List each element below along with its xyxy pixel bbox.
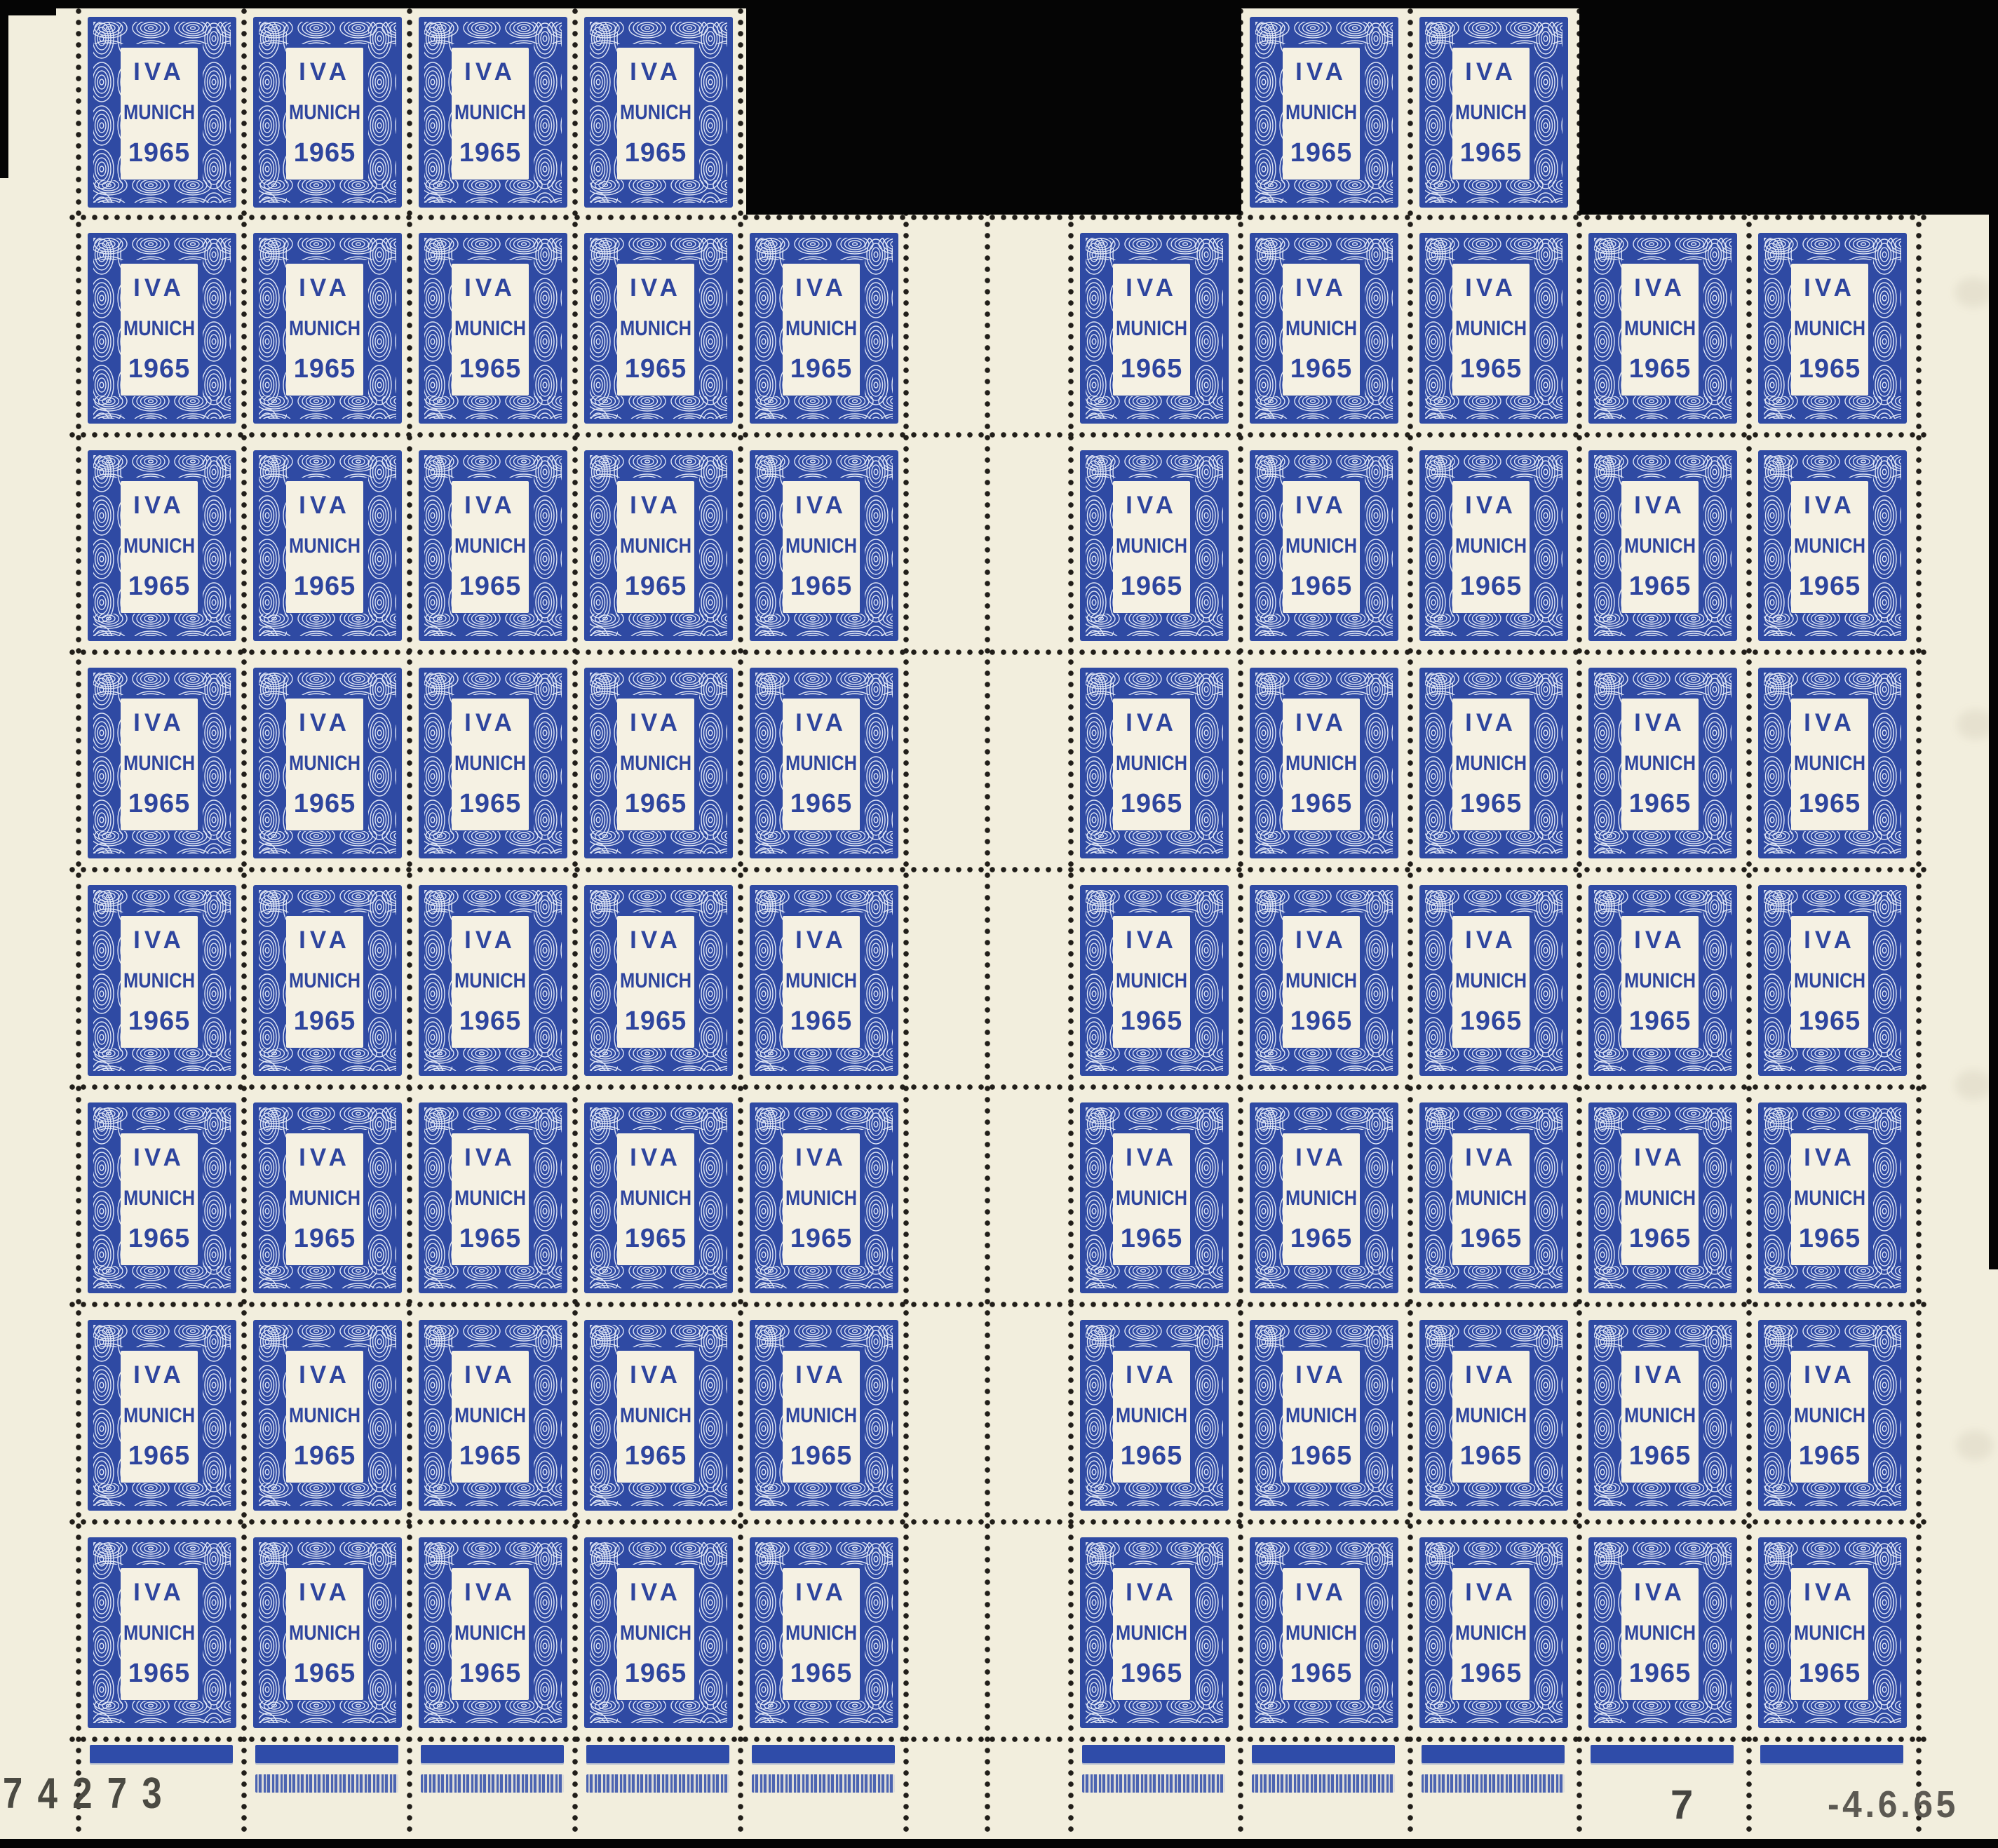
stamp-impression	[1250, 1102, 1398, 1293]
stamp	[750, 1537, 898, 1728]
stamp	[88, 668, 236, 858]
stamp	[88, 450, 236, 641]
stamp-impression	[1588, 1320, 1737, 1511]
stamp-impression	[88, 17, 236, 208]
stamp	[253, 17, 402, 208]
stamp	[1250, 233, 1398, 424]
stamp	[1758, 885, 1907, 1076]
color-bar-solid	[1422, 1745, 1565, 1763]
stamp-impression	[253, 885, 402, 1076]
stamp-impression	[419, 450, 567, 641]
stamp	[1250, 1537, 1398, 1728]
stamp-impression	[1080, 668, 1229, 858]
stamp-impression	[1758, 1102, 1907, 1293]
stamp-impression	[1250, 1537, 1398, 1728]
stamp	[253, 233, 402, 424]
stamp-impression	[1250, 450, 1398, 641]
stamp-impression	[1080, 885, 1229, 1076]
print-date: -4.6.65	[1828, 1783, 1959, 1826]
stamp	[88, 17, 236, 208]
stamp	[750, 1102, 898, 1293]
stamp-impression	[1419, 233, 1568, 424]
stamp-impression	[419, 1537, 567, 1728]
color-bar-solid	[1082, 1745, 1225, 1763]
stamp	[750, 885, 898, 1076]
stamp	[1758, 233, 1907, 424]
stamp-impression	[419, 1102, 567, 1293]
torn-away-area	[1989, 215, 1998, 1269]
margin-smudge	[1957, 1431, 1993, 1460]
stamp	[584, 1537, 733, 1728]
stamp-impression	[1419, 1320, 1568, 1511]
stamp-impression	[88, 450, 236, 641]
stamp	[1588, 1102, 1737, 1293]
perf-column	[1237, 6, 1244, 1832]
stamp-impression	[1080, 1537, 1229, 1728]
stamp-impression	[1250, 885, 1398, 1076]
stamp	[1250, 668, 1398, 858]
stamp	[419, 450, 567, 641]
stamp-impression	[1588, 1102, 1737, 1293]
stamp	[1588, 668, 1737, 858]
stamp-impression	[253, 17, 402, 208]
stamp-impression	[1419, 1102, 1568, 1293]
color-bar-solid	[586, 1745, 729, 1763]
color-bar-solid	[752, 1745, 895, 1763]
stamp	[1080, 450, 1229, 641]
perf-column	[75, 6, 82, 1832]
stamp-impression	[750, 1102, 898, 1293]
stamp-impression	[1588, 450, 1737, 641]
stamp-impression	[584, 1102, 733, 1293]
stamp-impression	[1588, 885, 1737, 1076]
stamp-impression	[88, 1102, 236, 1293]
color-bar-stippled	[421, 1774, 564, 1793]
stamp-impression	[1588, 233, 1737, 424]
margin-smudge	[1955, 1070, 1992, 1100]
perf-column	[572, 6, 579, 1832]
stamp	[1588, 1537, 1737, 1728]
plate-number: 7	[1670, 1781, 1693, 1828]
stamp	[253, 668, 402, 858]
stamp	[1588, 1320, 1737, 1511]
color-bar-stippled	[255, 1774, 398, 1793]
perf-row	[67, 1736, 1931, 1743]
stamp-impression	[1250, 17, 1398, 208]
stamp-impression	[88, 1537, 236, 1728]
stamp-impression	[584, 668, 733, 858]
torn-away-area	[1579, 0, 1998, 215]
margin-smudge	[1955, 278, 1992, 307]
color-bar-stippled	[752, 1774, 895, 1793]
torn-away-area	[746, 0, 1241, 215]
stamp-impression	[1758, 885, 1907, 1076]
stamp-impression	[1080, 1102, 1229, 1293]
stamp	[1419, 885, 1568, 1076]
stamp-impression	[419, 1320, 567, 1511]
stamp	[1080, 668, 1229, 858]
stamp	[1080, 1102, 1229, 1293]
stamp	[419, 1102, 567, 1293]
perf-column	[1576, 6, 1583, 1832]
perf-column	[1915, 6, 1922, 1832]
stamp-impression	[419, 17, 567, 208]
stamp-impression	[253, 668, 402, 858]
stamp	[419, 668, 567, 858]
stamp-impression	[1758, 1320, 1907, 1511]
color-bar-solid	[1252, 1745, 1395, 1763]
stamp	[1250, 450, 1398, 641]
stamp-impression	[584, 17, 733, 208]
stamp-impression	[253, 1320, 402, 1511]
torn-away-area	[0, 1839, 1998, 1848]
stamp-impression	[1080, 450, 1229, 641]
stamp-impression	[584, 233, 733, 424]
stamp-impression	[750, 1537, 898, 1728]
perf-row	[67, 1301, 1931, 1308]
stamp	[750, 668, 898, 858]
stamp-impression	[584, 1320, 733, 1511]
stamp-impression	[253, 233, 402, 424]
stamp	[253, 1537, 402, 1728]
color-bar-solid	[421, 1745, 564, 1763]
color-bar-stippled	[1252, 1774, 1395, 1793]
stamp-impression	[1419, 885, 1568, 1076]
perf-row	[67, 431, 1931, 438]
stamp	[1419, 1537, 1568, 1728]
color-bar-solid	[1591, 1745, 1734, 1763]
stamp	[419, 1320, 567, 1511]
perf-column	[1746, 6, 1753, 1832]
stamp	[1080, 233, 1229, 424]
stamp	[1419, 450, 1568, 641]
stamp	[750, 450, 898, 641]
stamp-impression	[253, 1537, 402, 1728]
stamp-impression	[1419, 450, 1568, 641]
stamp	[584, 1102, 733, 1293]
stamp	[750, 233, 898, 424]
stamp-impression	[1419, 1537, 1568, 1728]
stamp	[584, 17, 733, 208]
stamp	[1419, 17, 1568, 208]
stamp	[1588, 233, 1737, 424]
torn-away-area	[0, 0, 56, 15]
stamp	[584, 668, 733, 858]
stamp	[1419, 1320, 1568, 1511]
stamp	[1080, 1320, 1229, 1511]
stamp-impression	[750, 233, 898, 424]
stamp	[1588, 450, 1737, 641]
stamp	[1250, 1320, 1398, 1511]
stamp-impression	[1588, 1537, 1737, 1728]
stamp	[584, 233, 733, 424]
stamp-impression	[253, 450, 402, 641]
stamp	[584, 450, 733, 641]
stamp-impression	[1250, 1320, 1398, 1511]
stamp	[1758, 1320, 1907, 1511]
stamp	[750, 1320, 898, 1511]
stamp	[88, 885, 236, 1076]
perf-column	[1067, 6, 1074, 1832]
stamp	[1588, 885, 1737, 1076]
stamp	[1250, 17, 1398, 208]
stamp-impression	[1080, 1320, 1229, 1511]
perf-column	[241, 6, 248, 1832]
stamp-impression	[253, 1102, 402, 1293]
stamp	[1080, 885, 1229, 1076]
stamp-impression	[750, 668, 898, 858]
stamp-impression	[1080, 233, 1229, 424]
color-bar-stippled	[1422, 1774, 1565, 1793]
stamp-impression	[1419, 668, 1568, 858]
stamp-impression	[1758, 668, 1907, 858]
stamp	[1758, 450, 1907, 641]
stamp-impression	[1758, 1537, 1907, 1728]
stamp-impression	[584, 450, 733, 641]
stamp	[1758, 1537, 1907, 1728]
stamp-impression	[1588, 668, 1737, 858]
stamp-impression	[88, 668, 236, 858]
stamp	[419, 233, 567, 424]
color-bar-stippled	[1082, 1774, 1225, 1793]
stamp	[1419, 233, 1568, 424]
stamp-impression	[88, 233, 236, 424]
stamp-impression	[584, 1537, 733, 1728]
perf-row	[67, 1518, 1931, 1525]
stamp-sheet-scan: IVA MUNICH 1965 74273 7 -4.6.65	[0, 0, 1998, 1848]
stamp	[584, 1320, 733, 1511]
stamp-impression	[88, 1320, 236, 1511]
stamp	[1250, 885, 1398, 1076]
stamp-impression	[750, 1320, 898, 1511]
stamp	[1080, 1537, 1229, 1728]
stamp-impression	[584, 885, 733, 1076]
stamp	[253, 450, 402, 641]
perf-row	[67, 1084, 1931, 1091]
stamp	[1758, 668, 1907, 858]
stamp	[253, 885, 402, 1076]
perf-column	[984, 6, 991, 1832]
stamp	[419, 1537, 567, 1728]
stamp	[88, 233, 236, 424]
stamp	[253, 1102, 402, 1293]
stamp	[88, 1537, 236, 1728]
stamp-impression	[1250, 668, 1398, 858]
perf-column	[1407, 6, 1414, 1832]
color-bar-solid	[1760, 1745, 1903, 1763]
stamp-impression	[419, 885, 567, 1076]
stamp	[1419, 1102, 1568, 1293]
stamp	[88, 1102, 236, 1293]
sheet-number: 74273	[3, 1769, 177, 1819]
stamp-impression	[1419, 17, 1568, 208]
stamp	[1419, 668, 1568, 858]
stamp-impression	[1250, 233, 1398, 424]
stamp-impression	[88, 885, 236, 1076]
stamp	[253, 1320, 402, 1511]
stamp	[88, 1320, 236, 1511]
color-bar-solid	[255, 1745, 398, 1763]
color-bar-solid	[90, 1745, 233, 1763]
perf-column	[737, 6, 744, 1832]
stamp	[584, 885, 733, 1076]
perf-row	[67, 214, 1931, 221]
stamp	[419, 17, 567, 208]
color-bar-stippled	[586, 1774, 729, 1793]
stamp-impression	[750, 885, 898, 1076]
perf-column	[406, 6, 413, 1832]
perf-row	[67, 866, 1931, 873]
perf-row	[67, 649, 1931, 656]
stamp-impression	[419, 233, 567, 424]
stamp-impression	[1758, 450, 1907, 641]
torn-away-area	[0, 0, 8, 178]
stamp-impression	[1758, 233, 1907, 424]
stamp	[1250, 1102, 1398, 1293]
stamp-impression	[750, 450, 898, 641]
stamp	[419, 885, 567, 1076]
stamp	[1758, 1102, 1907, 1293]
stamp-impression	[419, 668, 567, 858]
perf-column	[903, 6, 910, 1832]
